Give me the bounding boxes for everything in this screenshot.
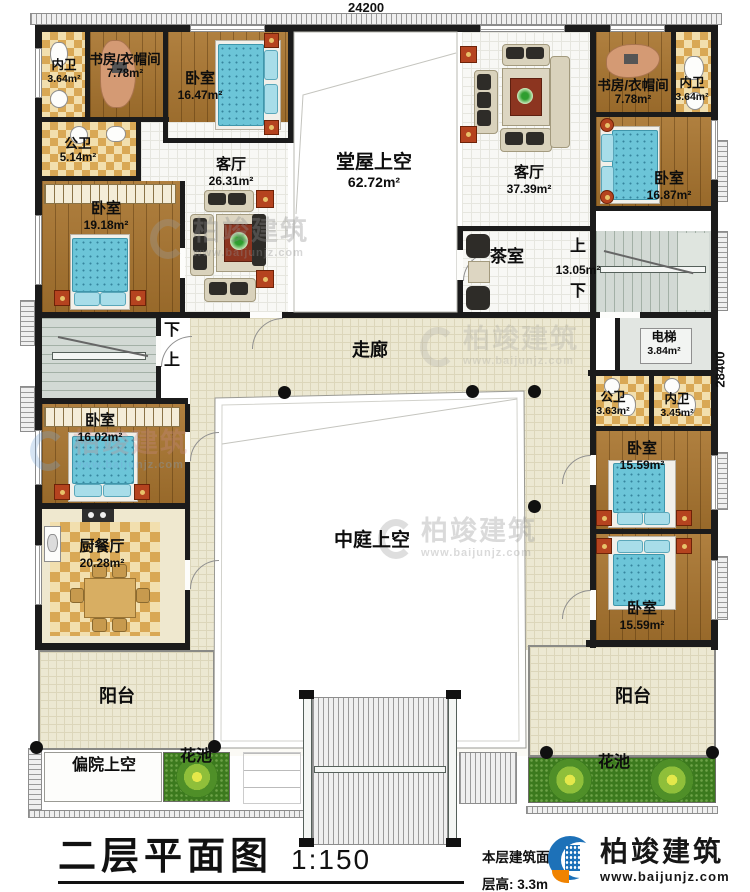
room-area: 19.18m² <box>70 218 142 232</box>
wall-segment <box>35 643 188 650</box>
room-name: 茶室 <box>478 247 536 267</box>
window <box>190 25 265 32</box>
nightstand <box>596 510 612 526</box>
stair-area-label: 13.05m² <box>550 263 606 277</box>
hatch-bottom-left <box>28 810 332 818</box>
room-label-bed-tl: 卧室 16.47m² <box>162 70 238 102</box>
room-label-bed-tr: 卧室 16.87m² <box>632 170 706 202</box>
tea-chair <box>466 286 490 310</box>
room-area: 62.72m² <box>322 174 426 191</box>
window <box>711 560 718 620</box>
nightstand <box>264 120 279 135</box>
wall-segment <box>590 426 718 431</box>
room-name: 客厅 <box>492 164 566 182</box>
drawing-scale: 1:150 <box>291 845 371 876</box>
room-area: 3.64m² <box>666 91 718 103</box>
column-dot <box>30 741 43 754</box>
room-label-balcony-r: 阳台 <box>602 686 664 707</box>
room-name: 中庭上空 <box>320 530 424 552</box>
wall-segment <box>136 122 141 181</box>
nightstand <box>596 538 612 554</box>
logo-building-icon <box>565 845 580 871</box>
nightstand <box>264 33 279 48</box>
room-name: 内卫 <box>650 392 704 407</box>
sofa-cushion <box>505 132 523 145</box>
wall-segment <box>711 25 718 650</box>
sofa-cushion <box>477 74 491 90</box>
sofa-cushion <box>230 282 248 295</box>
sofa-cushion <box>208 193 226 205</box>
room-area: 5.14m² <box>47 152 109 166</box>
stair-post <box>446 690 461 699</box>
room-area: 16.87m² <box>632 188 706 202</box>
window <box>35 545 42 605</box>
stove <box>82 509 114 522</box>
room-name: 阳台 <box>86 686 148 707</box>
room-area: 26.31m² <box>195 174 267 188</box>
stair-direction: 下 <box>160 322 184 341</box>
bed-pillow <box>103 484 131 497</box>
room-name: 偏院上空 <box>52 757 156 776</box>
stair-down-label: 下 <box>566 283 590 302</box>
plant-icon <box>650 758 694 802</box>
room-area: 3.45m² <box>650 407 704 419</box>
stair-direction: 上 <box>160 352 184 371</box>
wall-segment <box>596 206 714 211</box>
stove-burner-icon <box>100 512 106 518</box>
brand-url: www.baijunjz.com <box>600 870 730 883</box>
column-dot <box>540 746 553 759</box>
nightstand <box>676 510 692 526</box>
bed-pillow <box>601 134 614 162</box>
nightstand <box>54 290 70 306</box>
room-label-bath-r: 内卫 3.45m² <box>650 392 704 419</box>
bed-pillow <box>74 292 100 306</box>
bed-pillow <box>264 84 278 114</box>
door-gap <box>600 312 640 318</box>
room-label-flower-r: 花池 <box>588 754 640 773</box>
room-label-kitchen: 厨餐厅 20.28m² <box>56 538 148 570</box>
sofa-cushion <box>506 47 524 59</box>
wall-segment <box>462 226 593 231</box>
room-name: 电梯 <box>634 330 694 345</box>
room-name: 公卫 <box>47 136 109 152</box>
column-dot <box>278 386 291 399</box>
plant-icon <box>517 88 533 104</box>
dining-chair <box>70 588 84 603</box>
nightstand <box>130 290 146 306</box>
nightstand <box>134 484 150 500</box>
room-label-elevator: 电梯 3.84m² <box>634 330 694 357</box>
wall-segment <box>163 138 295 143</box>
room-name: 卧室 <box>606 440 678 458</box>
window <box>35 215 42 285</box>
room-name: 卧室 <box>70 200 142 218</box>
column-dot <box>528 500 541 513</box>
platform-left-2 <box>20 386 35 432</box>
stair-down-label: 下 <box>160 322 184 341</box>
room-name: 厨餐厅 <box>56 538 148 556</box>
wall-segment <box>35 398 188 404</box>
bed-pillow <box>617 512 643 525</box>
wall-segment <box>586 640 718 647</box>
nightstand <box>600 190 614 204</box>
dining-chair <box>112 618 127 632</box>
column-dot <box>466 385 479 398</box>
room-area: 15.59m² <box>606 458 678 472</box>
window <box>711 120 718 180</box>
side-table <box>460 126 477 143</box>
wall-segment <box>590 529 718 534</box>
room-name: 书房/衣帽间 <box>78 52 172 68</box>
logo-swoosh-icon <box>552 870 569 883</box>
room-label-flower-l: 花池 <box>170 748 222 767</box>
room-name: 走廊 <box>330 340 410 361</box>
sofa-cushion <box>526 132 544 145</box>
room-area: 13.05m² <box>550 263 606 277</box>
sink <box>50 90 68 108</box>
room-label-living-l: 客厅 26.31m² <box>195 156 267 188</box>
room-label-pbath-tl: 公卫 5.14m² <box>47 136 109 165</box>
room-area: 7.78m² <box>78 68 172 82</box>
room-area: 16.02m² <box>64 430 136 444</box>
door-gap <box>457 250 463 280</box>
plant-icon <box>548 758 592 802</box>
side-table <box>460 46 477 63</box>
room-area: 16.47m² <box>162 88 238 102</box>
sofa-cushion <box>228 193 246 205</box>
sofa-cabinet <box>550 56 570 148</box>
sofa-cushion <box>193 254 207 270</box>
room-name: 客厅 <box>195 156 267 174</box>
window <box>711 455 718 510</box>
grand-stairs-rail <box>448 697 457 845</box>
stair-up-label: 上 <box>566 238 590 257</box>
bed-pillow <box>644 512 670 525</box>
bed-pillow <box>74 484 102 497</box>
brand-text: 柏竣建筑 www.baijunjz.com <box>600 838 730 883</box>
wall-segment <box>596 112 714 117</box>
floor-corridor <box>190 318 590 650</box>
room-name: 花池 <box>170 748 222 767</box>
wall-segment <box>615 318 620 376</box>
dining-table <box>84 578 136 618</box>
room-label-bed-l: 卧室 19.18m² <box>70 200 142 232</box>
room-name: 卧室 <box>162 70 238 88</box>
room-label-balcony-l: 阳台 <box>86 686 148 707</box>
room-label-bath-tr: 内卫 3.64m² <box>666 76 718 103</box>
bed-pillow <box>617 540 643 553</box>
room-label-corridor: 走廊 <box>330 340 410 361</box>
room-label-atrium-void: 中庭上空 <box>320 530 424 552</box>
page-title: 二层平面图 <box>58 838 273 876</box>
sofa-cushion <box>252 214 266 266</box>
wall-segment <box>41 117 169 122</box>
room-label-pbath-r: 公卫 3.63m² <box>586 390 640 417</box>
room-area: 3.63m² <box>586 405 640 417</box>
room-label-bed-bl: 卧室 16.02m² <box>64 412 136 444</box>
title-block: 二层平面图 1:150 <box>58 838 464 884</box>
room-label-bed-r1: 卧室 15.59m² <box>606 440 678 472</box>
sofa-cushion <box>193 218 207 234</box>
sofa-cushion <box>477 92 491 108</box>
side-table <box>256 270 274 288</box>
room-name: 卧室 <box>64 412 136 430</box>
laptop <box>624 54 638 64</box>
room-area: 15.59m² <box>606 618 678 632</box>
room-name: 公卫 <box>586 390 640 405</box>
brand-name: 柏竣建筑 <box>600 838 730 866</box>
brand-logo: 柏竣建筑 www.baijunjz.com <box>548 834 730 886</box>
grand-stairs-rail <box>303 697 312 845</box>
stair-direction: 下 <box>566 283 590 302</box>
room-area: 3.84m² <box>634 345 694 357</box>
platform-left-1 <box>20 300 35 346</box>
side-table <box>256 190 274 208</box>
room-name: 卧室 <box>606 600 678 618</box>
room-name: 阳台 <box>602 686 664 707</box>
column-dot <box>528 385 541 398</box>
side-stairs-right <box>459 752 517 804</box>
sofa-cushion <box>209 282 227 295</box>
sofa-cushion <box>526 47 544 59</box>
column-dot <box>706 746 719 759</box>
toilet <box>106 126 126 142</box>
stair-post <box>299 690 314 699</box>
walkway-left <box>243 752 301 804</box>
hatch-left-bottom <box>28 748 42 812</box>
dining-chair <box>92 618 107 632</box>
bed-mattress <box>613 554 665 606</box>
nightstand <box>54 484 70 500</box>
room-label-bed-r2: 卧室 15.59m² <box>606 600 678 632</box>
room-name: 堂屋上空 <box>322 152 426 174</box>
room-area: 37.39m² <box>492 182 566 196</box>
room-label-study-tl: 书房/衣帽间 7.78m² <box>78 52 172 81</box>
nightstand <box>676 538 692 554</box>
plant-icon <box>230 232 248 250</box>
wall-segment <box>288 31 294 143</box>
room-label-court-void: 偏院上空 <box>52 757 156 776</box>
stove-burner-icon <box>88 512 94 518</box>
brand-logo-icon <box>548 834 596 886</box>
wall-segment <box>41 176 139 181</box>
window <box>35 430 42 485</box>
wall-segment <box>180 181 185 312</box>
room-name: 花池 <box>588 754 640 773</box>
bed-pillow <box>264 50 278 80</box>
window <box>610 25 665 32</box>
door-gap <box>250 312 282 318</box>
sofa-cushion <box>193 236 207 252</box>
door-gap <box>180 248 185 278</box>
bed-pillow <box>100 292 126 306</box>
bed-mattress <box>72 238 128 292</box>
dimension-right: 28400 <box>713 351 728 387</box>
room-label-hall-void: 堂屋上空 62.72m² <box>322 152 426 191</box>
hatch-bottom-right <box>526 806 718 814</box>
room-area: 20.28m² <box>56 556 148 570</box>
nightstand <box>600 118 614 132</box>
room-label-tea: 茶室 <box>478 247 536 267</box>
window <box>480 25 565 32</box>
sofa-cushion <box>477 110 491 126</box>
dimension-top: 24200 <box>348 0 384 15</box>
room-label-living-r: 客厅 37.39m² <box>492 164 566 196</box>
stair-direction: 上 <box>566 238 590 257</box>
stair-up-label: 上 <box>160 352 184 371</box>
bed-pillow <box>644 540 670 553</box>
room-name: 卧室 <box>632 170 706 188</box>
floor-plan: 24200 28400 <box>0 0 750 892</box>
dining-chair <box>136 588 150 603</box>
grand-stairs-landing <box>314 766 446 773</box>
room-name: 内卫 <box>666 76 718 91</box>
